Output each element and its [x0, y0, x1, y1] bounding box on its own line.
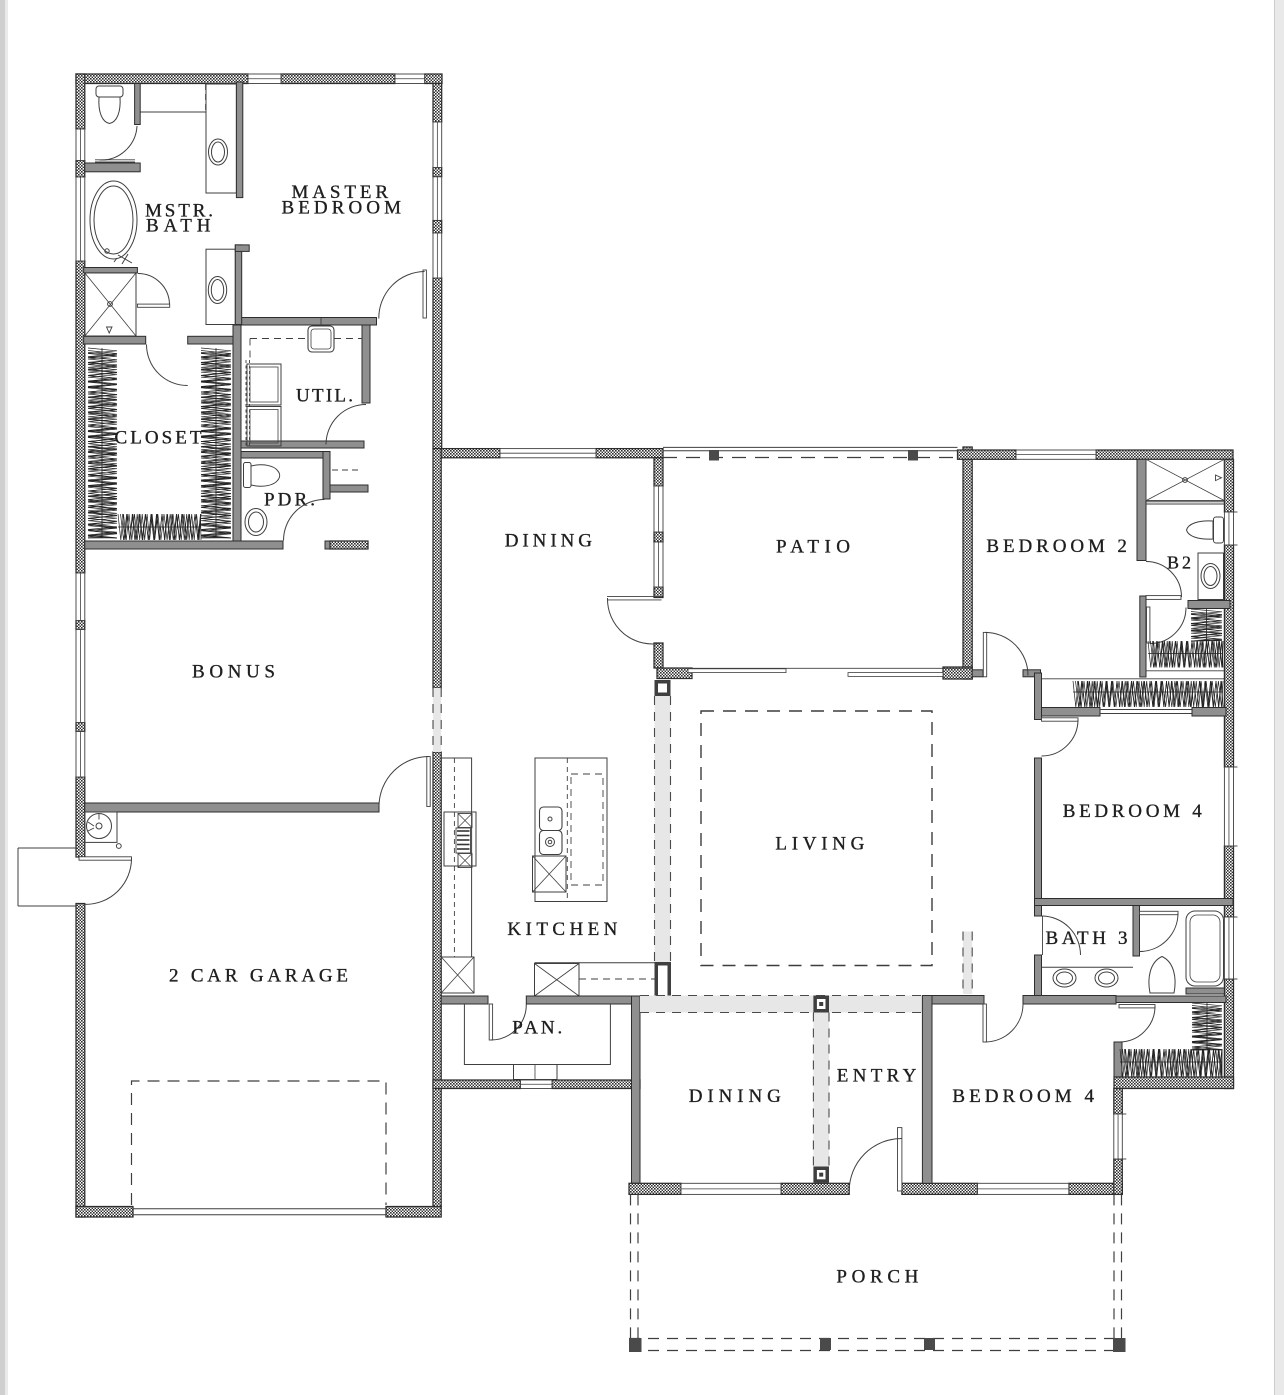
- svg-text:B 2: B 2: [1167, 553, 1191, 573]
- svg-text:2 CAR GARAGE: 2 CAR GARAGE: [169, 966, 348, 987]
- svg-text:BEDROOM: BEDROOM: [282, 198, 402, 219]
